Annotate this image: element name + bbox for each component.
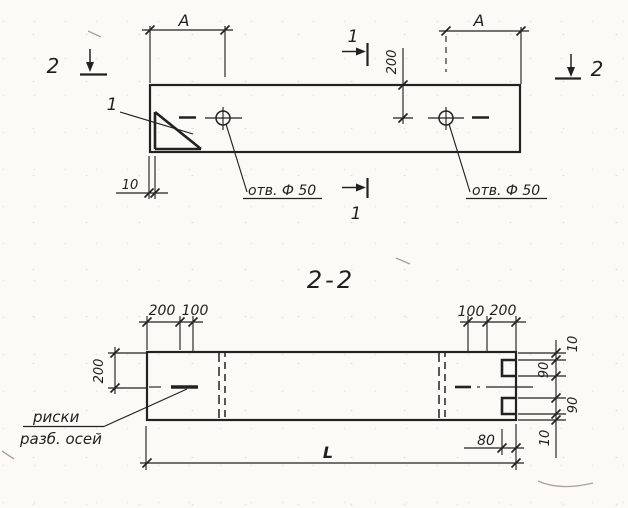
hole-right-callout: отв. Ф 50 — [449, 124, 547, 199]
section-marker-2-right: 2 — [555, 54, 603, 81]
dims-top-left: 200 100 — [139, 303, 208, 351]
section-marker-2-right-label: 2 — [591, 57, 604, 81]
section-marker-1-bottom-label: 1 — [351, 204, 362, 224]
dim-L-label: L — [323, 443, 333, 462]
hole-left-callout: отв. Ф 50 — [226, 124, 322, 199]
technical-drawing: 1 A A 200 — [0, 0, 628, 508]
section-marker-1-top: 1 — [342, 27, 368, 66]
dim-end-90-upper-label: 90 — [537, 362, 552, 379]
dim-end-10-bottom-label: 10 — [538, 430, 553, 447]
dim-end-10-top-label: 10 — [566, 336, 581, 353]
section-view-title: 2-2 — [307, 266, 355, 294]
hole-left-label: отв. Ф 50 — [248, 183, 316, 199]
dim-a-left: A — [142, 11, 233, 83]
section-marker-1-top-label: 1 — [348, 27, 359, 47]
dim-height-200: 200 — [92, 347, 148, 394]
dims-top-right: 100 200 — [458, 303, 526, 352]
end-notch-lower — [502, 398, 516, 414]
hidden-lines-left — [219, 353, 225, 419]
section-view: 200 100 100 200 200 — [19, 303, 581, 470]
dim-end-90-lower-label: 90 — [566, 397, 581, 414]
detail-callout-label: 1 — [107, 95, 118, 115]
dim-a-right-label: A — [473, 11, 485, 30]
dim-left-100-label: 100 — [182, 303, 209, 319]
hole-right — [428, 107, 489, 130]
dim-notch-80: 80 — [464, 429, 524, 455]
hole-right-label: отв. Ф 50 — [472, 183, 540, 199]
axis-marks-label-line2: разб. осей — [19, 430, 102, 448]
paper-artifacts — [2, 31, 593, 487]
plan-view: 1 A A 200 — [47, 11, 604, 224]
dim-80-label: 80 — [477, 433, 495, 449]
dim-a-right: A — [439, 11, 529, 84]
dim-10-label: 10 — [122, 178, 139, 193]
section-marker-1-bottom: 1 — [342, 178, 368, 224]
dim-right-200-label: 200 — [490, 303, 517, 319]
end-notch-upper — [502, 360, 516, 376]
hidden-lines-right — [439, 353, 445, 419]
dim-left-200-label: 200 — [149, 303, 176, 319]
dims-end-chain: 10 90 90 10 — [518, 336, 581, 458]
dim-length-L: L — [140, 424, 524, 470]
dim-a-left-label: A — [178, 11, 190, 30]
drawing-sheet: 1 A A 200 — [0, 0, 628, 508]
dim-10-edge: 10 — [116, 156, 168, 199]
section-marker-2-left-label: 2 — [47, 54, 60, 78]
axis-marks-callout: риски разб. осей — [19, 389, 187, 448]
dim-200-label: 200 — [385, 50, 400, 75]
dim-right-100-label: 100 — [458, 304, 485, 320]
axis-marks-label-line1: риски — [32, 408, 80, 426]
dim-height-200-label: 200 — [92, 359, 107, 384]
hole-left — [179, 107, 242, 130]
section-marker-2-left: 2 — [47, 49, 107, 78]
